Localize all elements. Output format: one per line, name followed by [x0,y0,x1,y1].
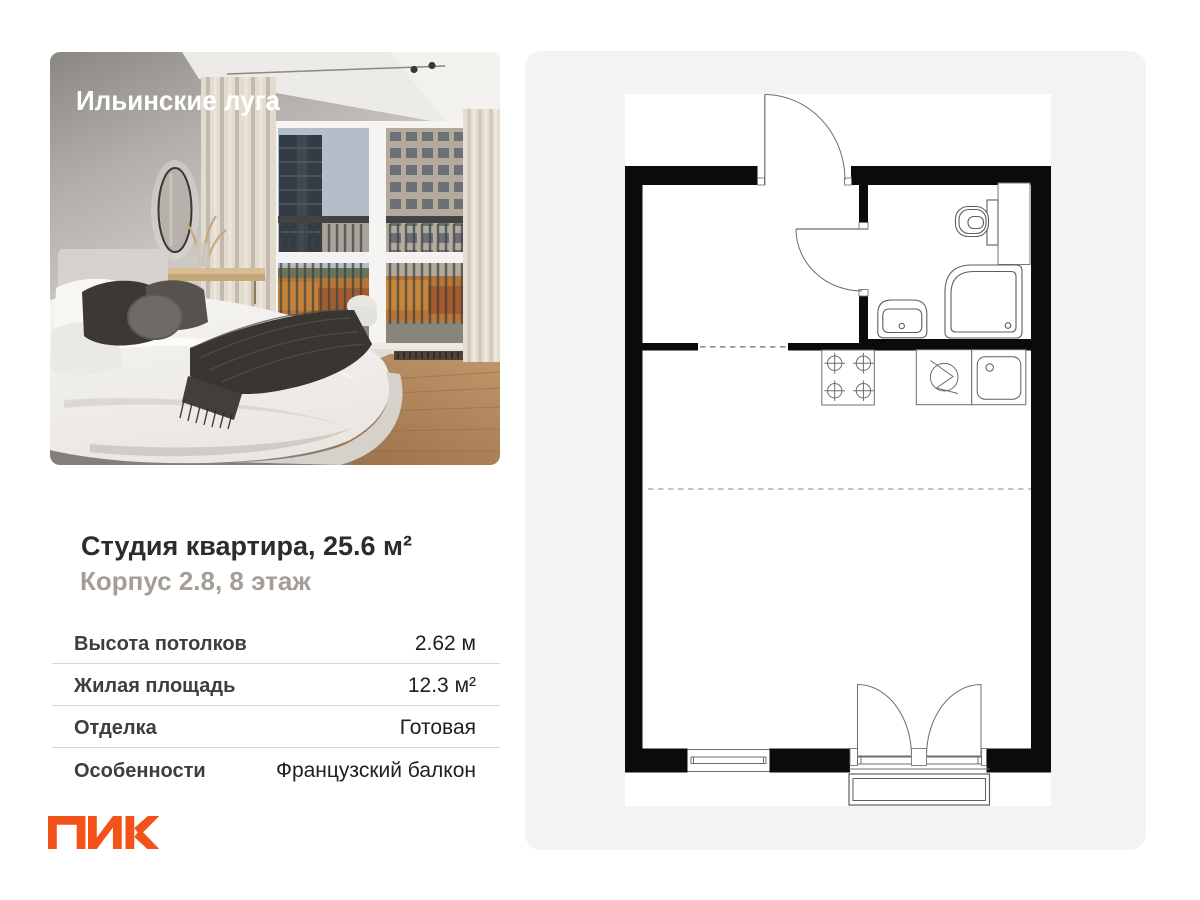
svg-text:Ильинские луга: Ильинские луга [76,85,280,116]
